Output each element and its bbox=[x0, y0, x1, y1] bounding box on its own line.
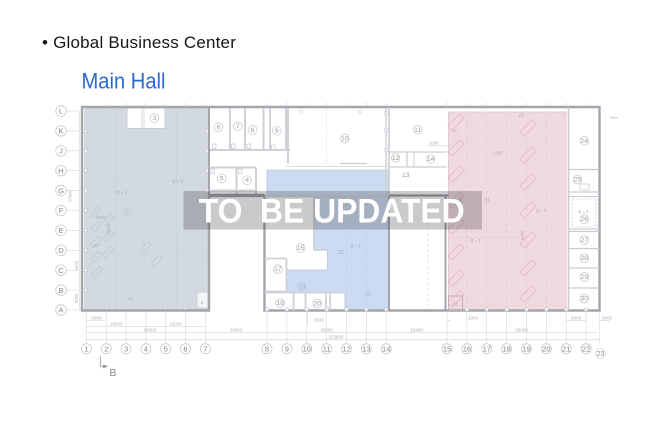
svg-text:E: E bbox=[58, 226, 63, 235]
svg-text:18000: 18000 bbox=[110, 321, 123, 326]
svg-text:Main Hall: Main Hall bbox=[82, 69, 166, 94]
svg-text:25: 25 bbox=[574, 177, 582, 184]
svg-text:19: 19 bbox=[299, 284, 305, 290]
svg-text:H: H bbox=[58, 166, 63, 175]
svg-text:Q = 3: Q = 3 bbox=[578, 209, 589, 214]
svg-text:L: L bbox=[59, 107, 63, 116]
svg-text:45°: 45° bbox=[94, 243, 100, 248]
svg-text:2: 2 bbox=[104, 344, 108, 353]
svg-text:26: 26 bbox=[581, 216, 589, 223]
svg-text:1: 1 bbox=[84, 344, 88, 353]
svg-text:7: 7 bbox=[203, 344, 207, 353]
svg-text:17: 17 bbox=[274, 266, 282, 273]
svg-text:36000: 36000 bbox=[144, 327, 157, 332]
svg-text:45°: 45° bbox=[478, 104, 484, 109]
svg-text:13: 13 bbox=[402, 172, 410, 179]
svg-text:A: A bbox=[58, 306, 63, 315]
svg-text:10: 10 bbox=[341, 136, 349, 143]
svg-text:Q = 3: Q = 3 bbox=[172, 179, 184, 184]
svg-text:45000: 45000 bbox=[515, 327, 528, 332]
svg-text:4: 4 bbox=[245, 177, 249, 184]
svg-text:7: 7 bbox=[236, 123, 240, 130]
svg-text:18000: 18000 bbox=[169, 321, 182, 326]
svg-text:6000: 6000 bbox=[74, 260, 79, 270]
svg-text:2: 2 bbox=[125, 210, 128, 216]
svg-text:23: 23 bbox=[518, 113, 524, 119]
svg-text:32: 32 bbox=[452, 302, 458, 308]
svg-text:J: J bbox=[59, 147, 63, 156]
svg-text:22: 22 bbox=[582, 344, 590, 353]
svg-text:C: C bbox=[58, 266, 64, 275]
svg-text:20: 20 bbox=[542, 344, 550, 353]
svg-text:6000: 6000 bbox=[74, 293, 79, 303]
svg-text:18400: 18400 bbox=[410, 327, 423, 332]
svg-text:6: 6 bbox=[217, 124, 221, 131]
svg-text:4: 4 bbox=[144, 344, 148, 353]
svg-text:K: K bbox=[58, 127, 63, 136]
svg-text:20: 20 bbox=[313, 300, 321, 307]
svg-text:3: 3 bbox=[153, 115, 157, 122]
svg-text:2300: 2300 bbox=[314, 318, 325, 323]
svg-text:Q = 3: Q = 3 bbox=[536, 208, 547, 213]
svg-text:29: 29 bbox=[581, 274, 589, 281]
svg-text:45°: 45° bbox=[452, 128, 458, 133]
svg-text:19: 19 bbox=[522, 344, 530, 353]
svg-text:9: 9 bbox=[275, 128, 279, 135]
svg-text:8: 8 bbox=[265, 344, 269, 353]
svg-text:18: 18 bbox=[502, 344, 510, 353]
svg-text:30: 30 bbox=[581, 296, 589, 303]
svg-text:15: 15 bbox=[297, 245, 305, 252]
svg-text:11: 11 bbox=[323, 344, 331, 353]
svg-text:3000: 3000 bbox=[602, 315, 613, 320]
svg-text:31: 31 bbox=[484, 198, 490, 204]
svg-text:153600: 153600 bbox=[328, 335, 344, 340]
svg-text:1000: 1000 bbox=[429, 141, 439, 146]
svg-text:9: 9 bbox=[285, 344, 289, 353]
svg-text:21: 21 bbox=[338, 250, 344, 256]
svg-text:21: 21 bbox=[562, 344, 570, 353]
svg-text:12: 12 bbox=[342, 344, 350, 353]
svg-text:Q = 3: Q = 3 bbox=[350, 243, 361, 248]
svg-text:60000: 60000 bbox=[67, 190, 72, 202]
svg-text:1000: 1000 bbox=[468, 315, 479, 320]
svg-text:10: 10 bbox=[303, 344, 311, 353]
svg-text:5000: 5000 bbox=[106, 223, 111, 233]
svg-text:6000: 6000 bbox=[571, 315, 582, 320]
svg-text:28: 28 bbox=[581, 255, 589, 262]
svg-text:18: 18 bbox=[276, 300, 284, 307]
svg-text:15: 15 bbox=[443, 344, 451, 353]
svg-text:13: 13 bbox=[362, 344, 370, 353]
svg-text:27: 27 bbox=[581, 237, 589, 244]
svg-text:5: 5 bbox=[220, 176, 224, 183]
svg-text:16: 16 bbox=[463, 344, 471, 353]
svg-text:11: 11 bbox=[414, 127, 421, 134]
svg-text:14: 14 bbox=[382, 344, 390, 353]
svg-text:D: D bbox=[58, 246, 64, 255]
svg-text:Q = 3: Q = 3 bbox=[470, 238, 481, 243]
svg-text:18000: 18000 bbox=[230, 327, 243, 332]
svg-text:14: 14 bbox=[427, 156, 435, 163]
svg-text:45°: 45° bbox=[128, 296, 134, 301]
svg-text:23: 23 bbox=[597, 351, 605, 358]
svg-text:17: 17 bbox=[483, 344, 491, 353]
svg-text:1300: 1300 bbox=[494, 151, 504, 156]
svg-text:22: 22 bbox=[365, 292, 371, 298]
svg-text:6000: 6000 bbox=[91, 315, 102, 320]
svg-text:F: F bbox=[59, 206, 64, 215]
svg-text:B: B bbox=[109, 367, 116, 379]
svg-text:3: 3 bbox=[124, 344, 128, 353]
svg-text:Q = 3: Q = 3 bbox=[116, 190, 128, 195]
svg-text:2500: 2500 bbox=[96, 215, 106, 220]
svg-text:8: 8 bbox=[251, 127, 255, 134]
svg-text:TO BE UPDATED: TO BE UPDATED bbox=[199, 193, 465, 231]
svg-text:5: 5 bbox=[164, 344, 168, 353]
svg-text:12: 12 bbox=[392, 155, 400, 162]
svg-text:6000: 6000 bbox=[520, 230, 525, 240]
svg-text:B: B bbox=[58, 286, 63, 295]
svg-text:36000: 36000 bbox=[320, 327, 333, 332]
svg-text:G: G bbox=[58, 186, 64, 195]
svg-text:24: 24 bbox=[581, 138, 589, 145]
svg-text:6: 6 bbox=[183, 344, 187, 353]
